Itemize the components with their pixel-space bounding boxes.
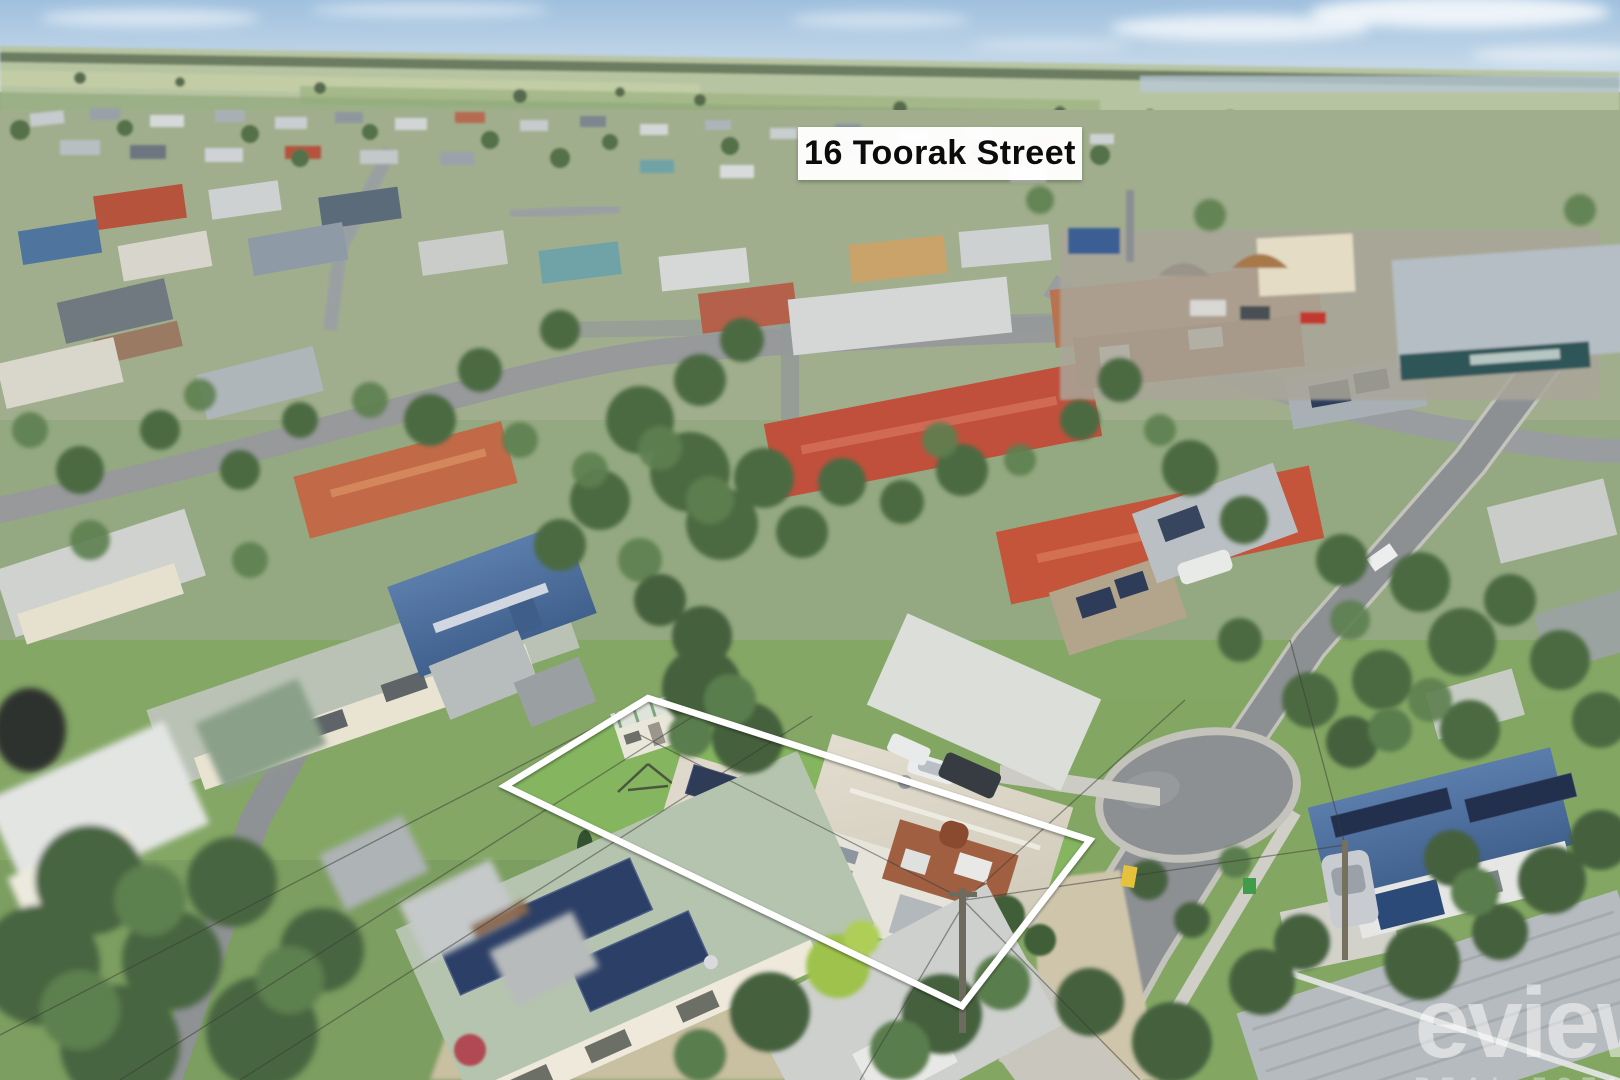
- aerial-photo: 16 Toorak Street eview REAL ESTATE: [0, 0, 1620, 1080]
- address-label: 16 Toorak Street: [798, 127, 1082, 180]
- address-label-text: 16 Toorak Street: [804, 134, 1076, 173]
